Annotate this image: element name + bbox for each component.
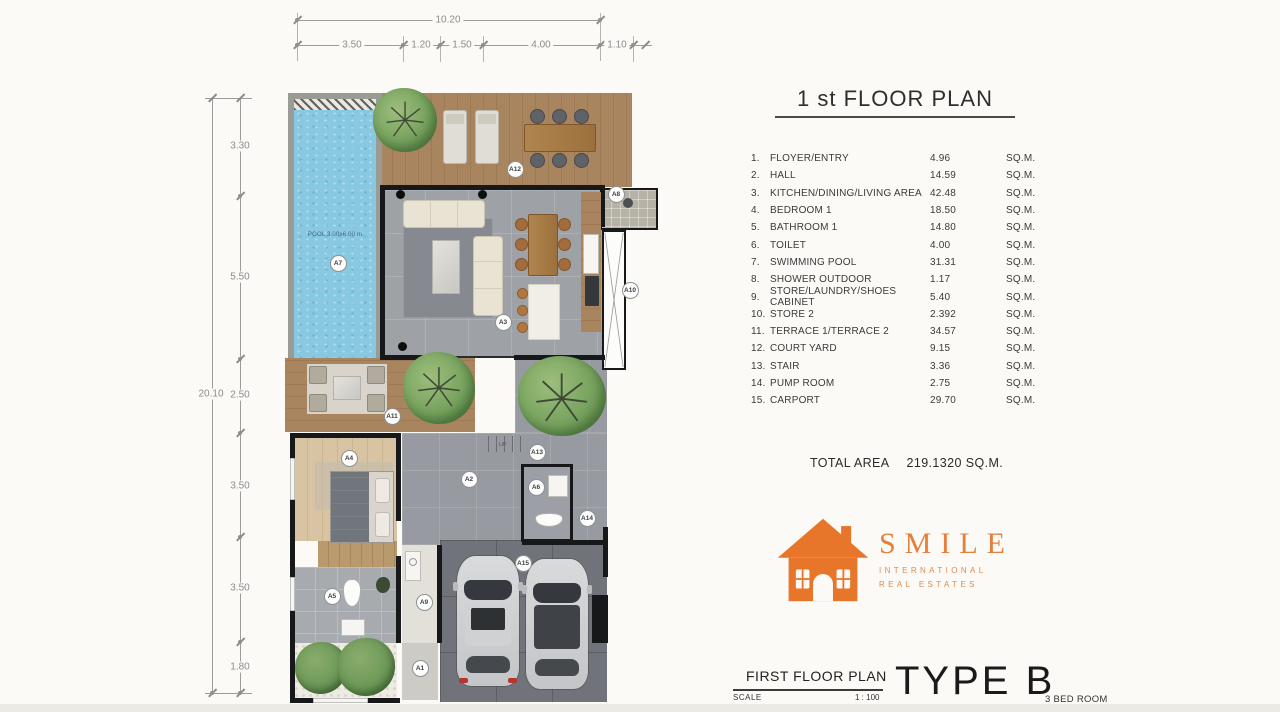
dim-label: 4.00 — [528, 40, 553, 51]
outdoor-chair — [552, 109, 567, 124]
room-marker-a5: A5 — [324, 588, 341, 605]
wall-living-top — [380, 185, 605, 190]
terrace-table — [333, 376, 361, 400]
dim-label: 5.50 — [227, 272, 252, 283]
room-marker-a12: A12 — [507, 161, 524, 178]
bar-stool — [517, 288, 528, 299]
room-area: 34.57 — [930, 326, 1006, 337]
room-marker-a2: A2 — [461, 471, 478, 488]
room-area: 29.70 — [930, 395, 1006, 406]
closet-strip — [318, 541, 397, 567]
room-name: SHOWER OUTDOOR — [770, 274, 930, 285]
room-name: STAIR — [770, 361, 930, 372]
pool-edge-hatch — [294, 99, 376, 110]
terrace-armchair — [309, 366, 327, 384]
dim-node — [631, 43, 635, 47]
car-mirror — [587, 585, 592, 594]
car-roof — [465, 602, 511, 646]
outdoor-chair — [530, 109, 545, 124]
room-num: 5. — [751, 222, 770, 233]
dining-chair — [515, 218, 528, 231]
dim-label: 1.80 — [227, 662, 252, 673]
room-area: 14.59 — [930, 170, 1006, 181]
room-row: 12.COURT YARD9.15SQ.M. — [751, 340, 1041, 357]
wall-carport-right-upper — [603, 527, 608, 577]
dim-label: 10.20 — [432, 15, 463, 26]
total-area-label: TOTAL AREA — [810, 456, 890, 470]
room-marker-a7: A7 — [330, 255, 347, 272]
room-area: 2.75 — [930, 378, 1006, 389]
room-unit: SQ.M. — [1006, 153, 1041, 164]
room-num: 9. — [751, 292, 770, 303]
room-area: 2.392 — [930, 309, 1006, 320]
total-area-value: 219.1320 SQ.M. — [907, 456, 1004, 470]
room-num: 7. — [751, 257, 770, 268]
room-marker-a10: A10 — [622, 282, 639, 299]
car-mirror — [522, 585, 527, 594]
dim-node — [481, 43, 485, 47]
room-name: STORE 2 — [770, 309, 930, 320]
room-unit: SQ.M. — [1006, 205, 1041, 216]
dim-ext — [440, 36, 441, 62]
store2-cabinet — [602, 230, 626, 370]
room-area: 1.17 — [930, 274, 1006, 285]
floor-plan: POOL 3.00x6.00 m. — [285, 90, 667, 708]
kitchen-island — [528, 284, 560, 340]
dim-node — [238, 431, 242, 435]
room-unit: SQ.M. — [1006, 240, 1041, 251]
room-unit: SQ.M. — [1006, 395, 1041, 406]
bed-pillow — [375, 512, 390, 537]
room-name: SWIMMING POOL — [770, 257, 930, 268]
room-name: FLOYER/ENTRY — [770, 153, 930, 164]
room-num: 4. — [751, 205, 770, 216]
outdoor-chair — [552, 153, 567, 168]
room-num: 6. — [751, 240, 770, 251]
dim-label: 1.20 — [408, 40, 433, 51]
dim-label: 3.50 — [227, 481, 252, 492]
room-unit: SQ.M. — [1006, 292, 1041, 303]
dining-chair — [515, 238, 528, 251]
dim-node — [598, 43, 602, 47]
logo-text-block: SMILE INTERNATIONAL REAL ESTATES — [879, 517, 1014, 603]
garden-window — [313, 698, 368, 703]
car-rear-window — [466, 656, 510, 673]
room-area: 5.40 — [930, 292, 1006, 303]
car — [526, 559, 588, 689]
dim-node — [210, 691, 214, 695]
dim-label: 1.10 — [604, 40, 629, 51]
sofa — [403, 200, 485, 228]
room-area: 18.50 — [930, 205, 1006, 216]
column — [396, 190, 405, 199]
room-area: 42.48 — [930, 188, 1006, 199]
dim-label: 2.50 — [227, 390, 252, 401]
room-row: 3.KITCHEN/DINING/LIVING AREA42.48SQ.M. — [751, 185, 1041, 202]
car — [457, 556, 519, 686]
logo-subtitle-1: INTERNATIONAL — [879, 566, 1014, 575]
room-marker-a13: A13 — [529, 444, 546, 461]
titleblock-plan-name: FIRST FLOOR PLAN — [746, 668, 887, 684]
room-area: 31.31 — [930, 257, 1006, 268]
sun-lounger — [443, 110, 467, 164]
total-area-row: TOTAL AREA 219.1320 SQ.M. — [810, 456, 1003, 470]
terrace-armchair — [367, 394, 385, 412]
dim-node — [401, 43, 405, 47]
room-area: 9.15 — [930, 343, 1006, 354]
sun-lounger — [475, 110, 499, 164]
courtyard-tree — [518, 356, 606, 436]
room-area: 4.96 — [930, 153, 1006, 164]
room-marker-a6: A6 — [528, 479, 545, 496]
car-roof — [534, 605, 580, 649]
wall-living-left — [380, 185, 385, 360]
outdoor-chair — [530, 153, 545, 168]
room-name: TERRACE 1/TERRACE 2 — [770, 326, 930, 337]
room-row: 5.BATHROOM 114.80SQ.M. — [751, 219, 1041, 236]
room-marker-a15: A15 — [515, 555, 532, 572]
bathroom-sink — [341, 619, 365, 636]
room-num: 8. — [751, 274, 770, 285]
room-row: 14.PUMP ROOM2.75SQ.M. — [751, 375, 1041, 392]
room-row: 10.STORE 22.392SQ.M. — [751, 306, 1041, 323]
room-num: 3. — [751, 188, 770, 199]
room-marker-a4: A4 — [341, 450, 358, 467]
bar-stool — [517, 322, 528, 333]
column — [398, 342, 407, 351]
room-row: 4.BEDROOM 118.50SQ.M. — [751, 202, 1041, 219]
page-background: POOL 3.00x6.00 m. — [0, 0, 1280, 712]
car-windshield — [464, 580, 512, 600]
dining-chair — [515, 258, 528, 271]
dim-node — [238, 194, 242, 198]
stove — [585, 276, 599, 306]
kitchen-cabinet — [583, 234, 599, 274]
dim-label: 1.50 — [449, 40, 474, 51]
bathroom-window — [290, 577, 295, 611]
dim-label: 20.10 — [195, 389, 226, 400]
car-rear-window — [535, 659, 579, 676]
dim-label: 3.50 — [227, 583, 252, 594]
washing-machine — [405, 551, 421, 581]
bed — [330, 471, 394, 543]
room-unit: SQ.M. — [1006, 222, 1041, 233]
room-num: 12. — [751, 343, 770, 354]
page-bottom-edge — [0, 704, 1280, 712]
titleblock-scale-value: 1 : 100 — [855, 693, 879, 702]
tree-branches — [413, 362, 465, 414]
dining-table — [528, 214, 558, 276]
cabinet-x-lines — [604, 232, 624, 368]
coffee-table — [432, 240, 460, 294]
room-row: 2.HALL14.59SQ.M. — [751, 167, 1041, 184]
room-row: 7.SWIMMING POOL31.31SQ.M. — [751, 254, 1041, 271]
shower-tray — [548, 475, 568, 497]
room-name: PUMP ROOM — [770, 378, 930, 389]
room-table: 1.FLOYER/ENTRY4.96SQ.M.2.HALL14.59SQ.M.3… — [751, 150, 1041, 409]
dim-ext — [483, 36, 484, 62]
room-marker-a14: A14 — [579, 510, 596, 527]
washer-door — [409, 558, 417, 566]
plant — [376, 577, 390, 593]
room-row: 11.TERRACE 1/TERRACE 234.57SQ.M. — [751, 323, 1041, 340]
car-sunroof — [471, 608, 505, 630]
terrace-armchair — [309, 394, 327, 412]
room-marker-a9: A9 — [416, 594, 433, 611]
room-name: COURT YARD — [770, 343, 930, 354]
room-name: CARPORT — [770, 395, 930, 406]
room-marker-a8: A8 — [608, 186, 625, 203]
dining-chair — [558, 218, 571, 231]
tree — [403, 352, 475, 424]
room-unit: SQ.M. — [1006, 378, 1041, 389]
bed-blanket — [331, 472, 369, 542]
room-unit: SQ.M. — [1006, 170, 1041, 181]
dim-label: 3.30 — [227, 141, 252, 152]
room-unit: SQ.M. — [1006, 274, 1041, 285]
sheet-title-underline — [775, 116, 1015, 118]
logo-subtitle-2: REAL ESTATES — [879, 580, 1014, 589]
bush — [337, 638, 395, 696]
dim-node — [238, 357, 242, 361]
wall-carport-right-block — [592, 595, 608, 643]
company-logo: SMILE INTERNATIONAL REAL ESTATES — [777, 517, 1014, 603]
wall-bedroom-right-upper — [396, 433, 401, 521]
pool-dimensions-text: POOL 3.00x6.00 m. — [299, 232, 373, 238]
room-area: 4.00 — [930, 240, 1006, 251]
dim-label: 3.50 — [339, 40, 364, 51]
dim-node — [238, 691, 242, 695]
room-unit: SQ.M. — [1006, 361, 1041, 372]
room-name: KITCHEN/DINING/LIVING AREA — [770, 188, 930, 199]
outdoor-shower-fixture — [623, 198, 633, 208]
room-num: 13. — [751, 361, 770, 372]
tree — [373, 88, 437, 152]
titleblock-divider — [733, 689, 883, 691]
room-num: 10. — [751, 309, 770, 320]
column — [478, 190, 487, 199]
room-num: 11. — [751, 326, 770, 337]
sheet-title: 1 st FLOOR PLAN — [775, 86, 1015, 112]
outdoor-chair — [574, 109, 589, 124]
room-num: 1. — [751, 153, 770, 164]
dining-chair — [558, 238, 571, 251]
room-num: 15. — [751, 395, 770, 406]
car-windshield — [533, 583, 581, 603]
room-marker-a11: A11 — [384, 408, 401, 425]
room-name: BATHROOM 1 — [770, 222, 930, 233]
dim-node — [438, 43, 442, 47]
dim-node — [295, 43, 299, 47]
tree-branches — [530, 367, 593, 430]
dining-chair — [558, 258, 571, 271]
room-name: BEDROOM 1 — [770, 205, 930, 216]
room-marker-a1: A1 — [412, 660, 429, 677]
room-name: HALL — [770, 170, 930, 181]
bar-stool — [517, 305, 528, 316]
bed-pillow — [375, 478, 390, 503]
car-mirror — [453, 582, 458, 591]
room-row: 13.STAIR3.36SQ.M. — [751, 358, 1041, 375]
room-row: 9.STORE/LAUNDRY/SHOES CABINET5.40SQ.M. — [751, 288, 1041, 305]
dim-ext — [633, 36, 634, 62]
car-taillight — [459, 678, 468, 683]
room-unit: SQ.M. — [1006, 309, 1041, 320]
room-unit: SQ.M. — [1006, 257, 1041, 268]
room-name: STORE/LAUNDRY/SHOES CABINET — [770, 286, 930, 308]
logo-brand-name: SMILE — [879, 527, 1014, 561]
wall-store-right — [437, 545, 442, 643]
room-marker-a3: A3 — [495, 314, 512, 331]
room-num: 2. — [751, 170, 770, 181]
room-num: 14. — [751, 378, 770, 389]
wall-bedroom-top — [290, 433, 400, 438]
terrace-armchair — [367, 366, 385, 384]
outdoor-dining-table — [524, 124, 596, 152]
room-area: 3.36 — [930, 361, 1006, 372]
car-taillight — [508, 678, 517, 683]
dim-node — [238, 535, 242, 539]
dim-node — [598, 18, 602, 22]
room-area: 14.80 — [930, 222, 1006, 233]
sofa — [473, 236, 503, 316]
room-row: 15.CARPORT29.70SQ.M. — [751, 392, 1041, 409]
room-unit: SQ.M. — [1006, 343, 1041, 354]
titleblock-type: TYPE B — [895, 659, 1055, 704]
room-unit: SQ.M. — [1006, 326, 1041, 337]
room-row: 1.FLOYER/ENTRY4.96SQ.M. — [751, 150, 1041, 167]
house-logo-icon — [777, 517, 869, 603]
bedroom-window — [290, 458, 295, 500]
room-name: TOILET — [770, 240, 930, 251]
room-row: 6.TOILET4.00SQ.M. — [751, 236, 1041, 253]
stair-up-label: UP — [499, 442, 507, 448]
dim-node — [238, 640, 242, 644]
dim-ext — [403, 36, 404, 62]
outdoor-chair — [574, 153, 589, 168]
titleblock-scale-label: SCALE — [733, 693, 762, 702]
dim-node — [295, 18, 299, 22]
tree-branches — [382, 97, 428, 143]
wall-bedroom-right-lower — [396, 556, 401, 643]
room-unit: SQ.M. — [1006, 188, 1041, 199]
